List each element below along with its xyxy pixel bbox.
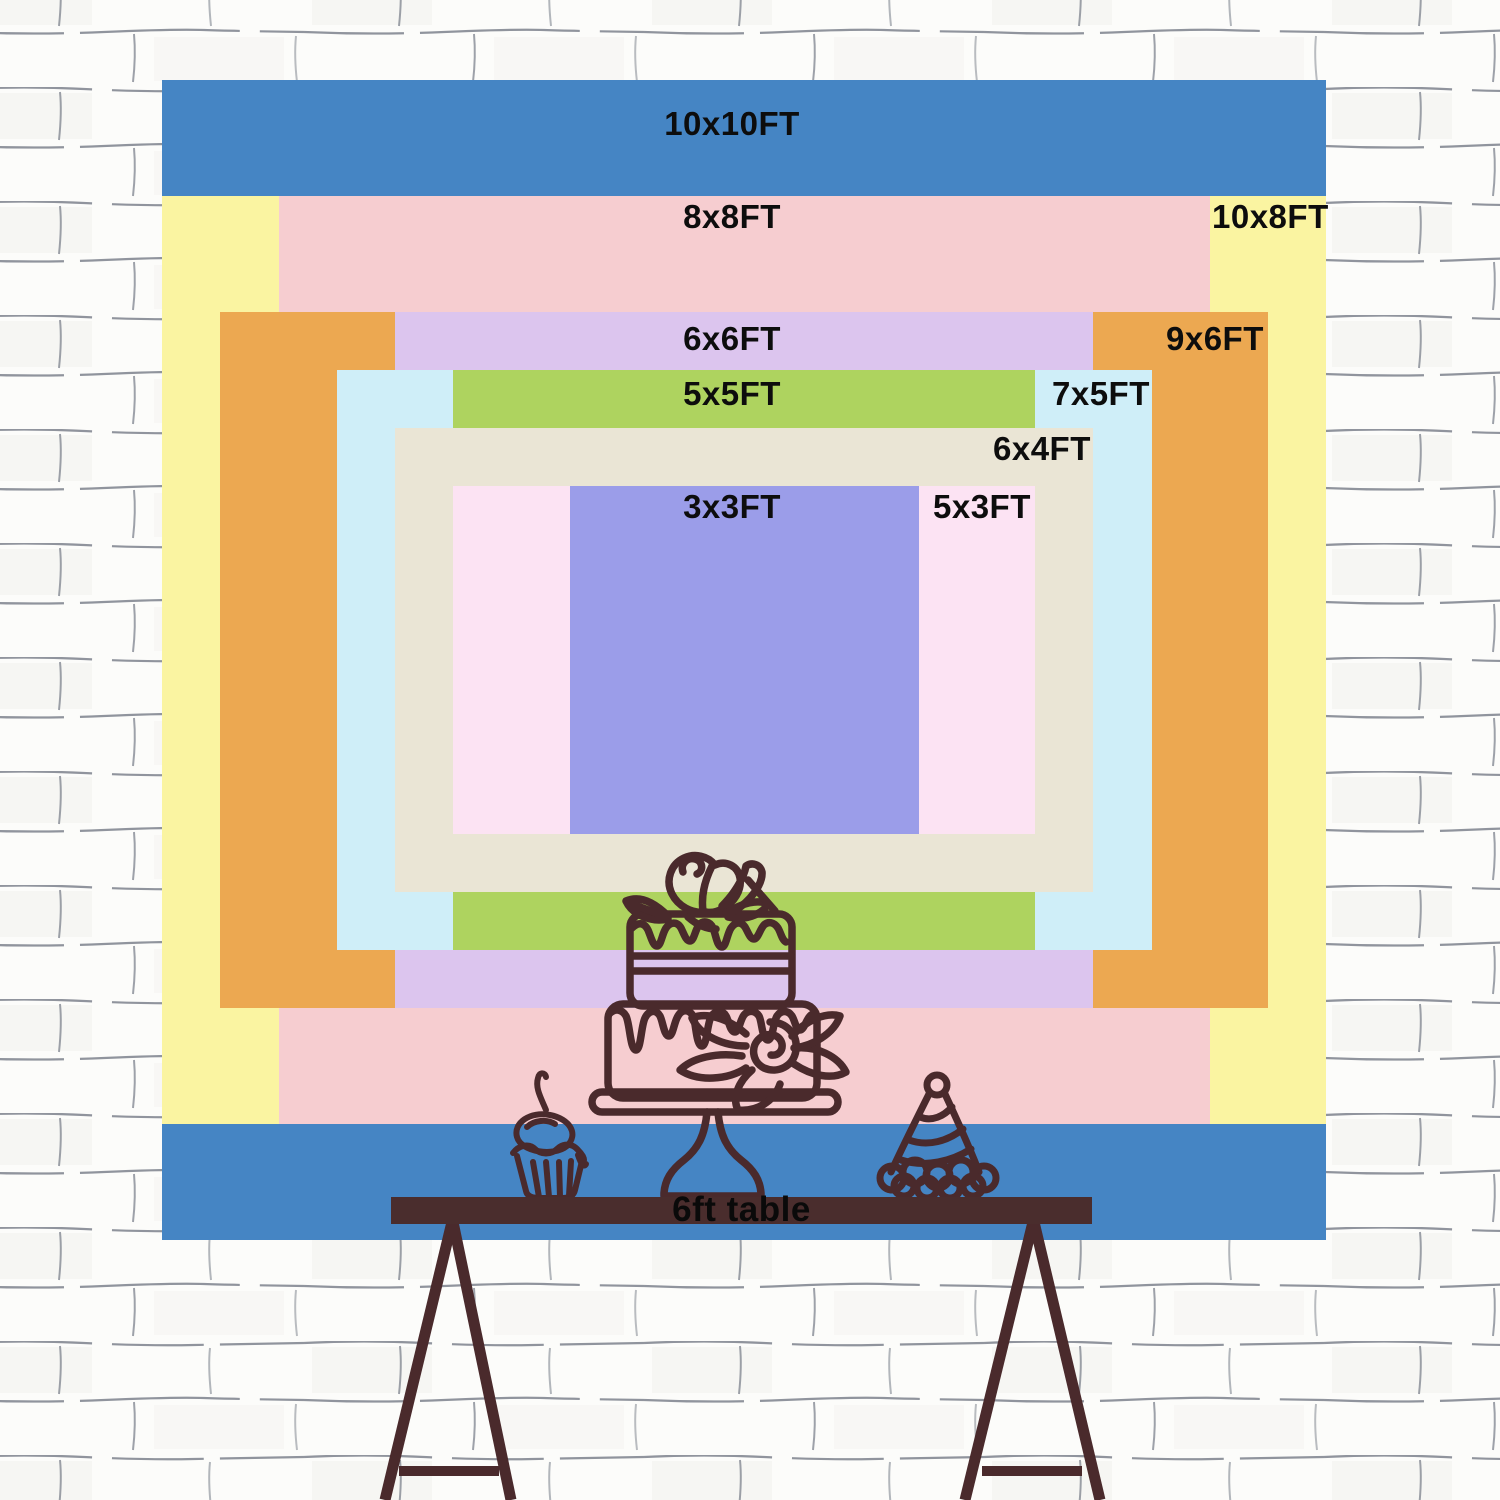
table-label: 6ft table (391, 1190, 1092, 1230)
backdrop-size-chart: 10x10FT 10x8FT 8x8FT 9x6FT 6x6FT 7x5FT 5… (162, 80, 1326, 1240)
size-rect-3x3 (570, 486, 919, 834)
size-label-5x5: 5x5FT (150, 376, 1314, 412)
size-label-3x3: 3x3FT (150, 489, 1314, 525)
size-label-8x8: 8x8FT (150, 199, 1314, 235)
size-label-6x6: 6x6FT (150, 321, 1314, 357)
size-label-6x4: 6x4FT (993, 431, 1091, 467)
size-label-10x10: 10x10FT (150, 106, 1314, 142)
